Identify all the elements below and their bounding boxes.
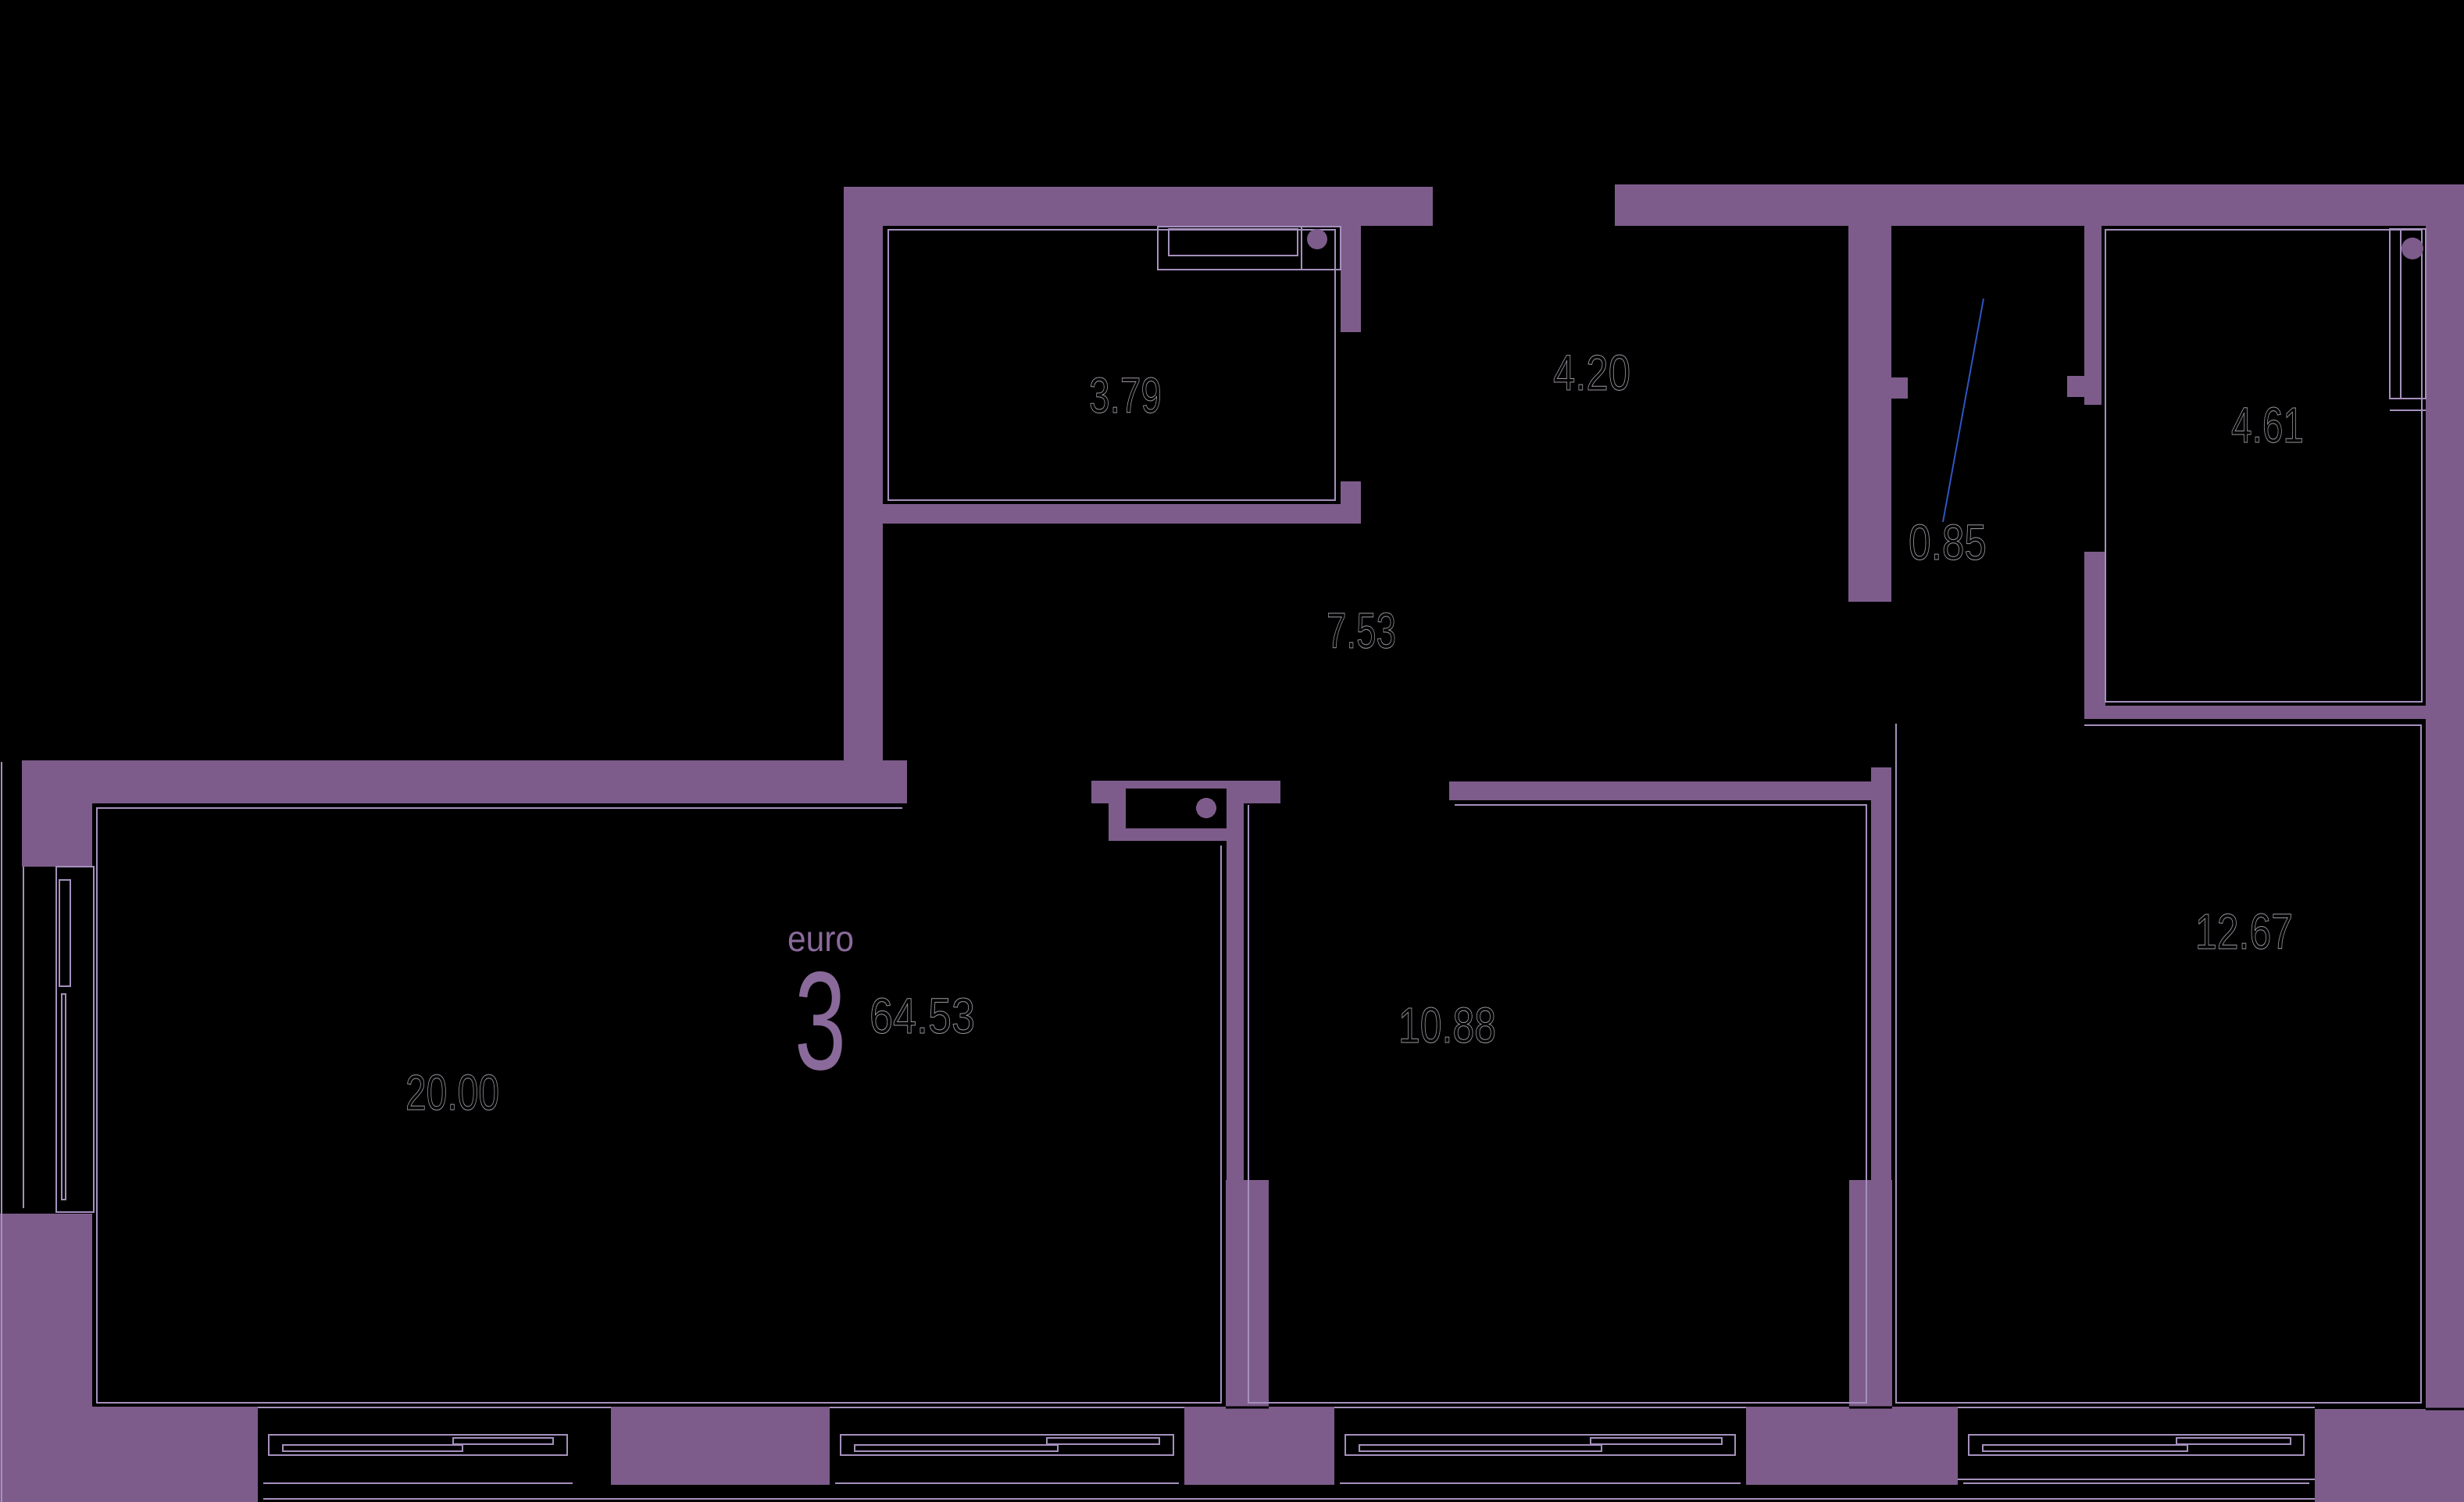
svg-text:12.67: 12.67 bbox=[2195, 903, 2293, 960]
svg-text:20.00: 20.00 bbox=[405, 1064, 499, 1121]
svg-text:0.85: 0.85 bbox=[1909, 514, 1987, 570]
svg-text:3.79: 3.79 bbox=[1089, 367, 1162, 424]
svg-text:7.53: 7.53 bbox=[1327, 603, 1396, 659]
svg-text:64.53: 64.53 bbox=[870, 988, 975, 1044]
svg-text:3: 3 bbox=[795, 942, 846, 1099]
svg-text:4.20: 4.20 bbox=[1553, 345, 1630, 401]
svg-text:10.88: 10.88 bbox=[1398, 997, 1496, 1053]
svg-text:4.61: 4.61 bbox=[2231, 397, 2304, 453]
